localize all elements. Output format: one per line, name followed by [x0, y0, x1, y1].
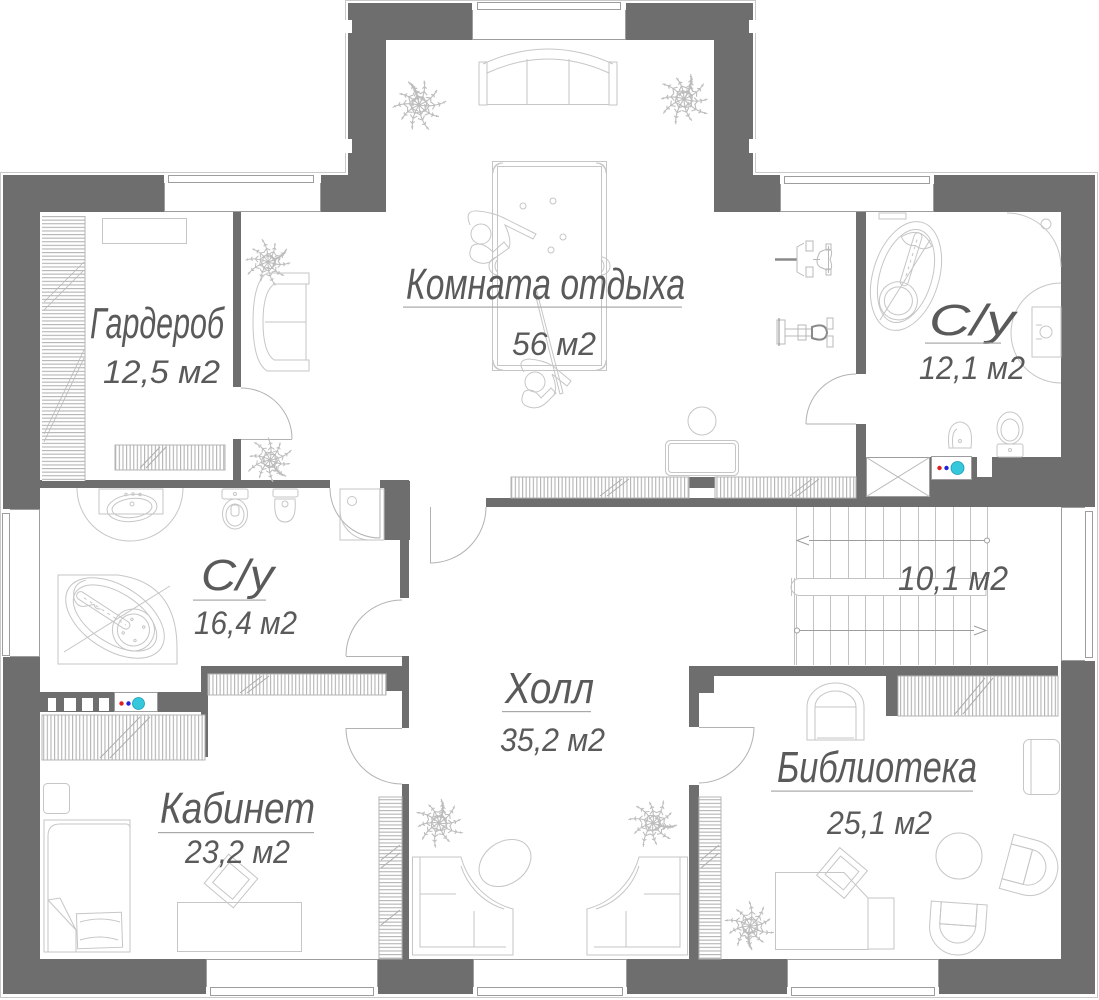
svg-text:10,1 м2: 10,1 м2	[898, 560, 1008, 598]
svg-text:25,1 м2: 25,1 м2	[826, 805, 932, 841]
svg-text:16,4 м2: 16,4 м2	[194, 605, 297, 641]
svg-text:Гардероб: Гардероб	[90, 299, 226, 348]
svg-text:12,1 м2: 12,1 м2	[919, 350, 1025, 386]
svg-text:Комната отдыха: Комната отдыха	[406, 260, 685, 309]
svg-text:С/у: С/у	[929, 296, 1019, 345]
svg-text:35,2 м2: 35,2 м2	[500, 722, 605, 758]
svg-text:Холл: Холл	[504, 664, 594, 713]
svg-text:Библиотека: Библиотека	[777, 743, 977, 792]
svg-text:Кабинет: Кабинет	[160, 784, 315, 833]
svg-text:12,5 м2: 12,5 м2	[103, 354, 220, 390]
svg-text:23,2 м2: 23,2 м2	[184, 834, 290, 870]
svg-text:56 м2: 56 м2	[512, 326, 596, 362]
svg-text:С/у: С/у	[201, 551, 277, 600]
